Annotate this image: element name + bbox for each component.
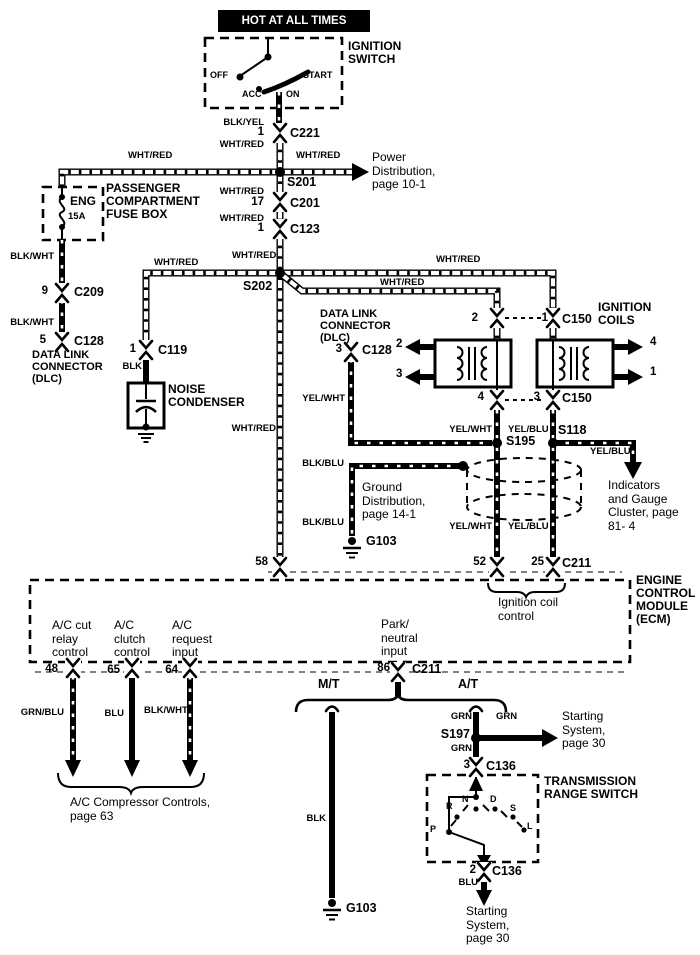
dlc-mid-label: DATA LINK CONNECTOR (DLC) xyxy=(320,309,404,345)
splice-s201: S201 xyxy=(287,175,316,189)
pin-64: 64 xyxy=(148,664,178,676)
ignition-switch-label: IGNITION SWITCH xyxy=(348,40,420,66)
connector-c211-top: C211 xyxy=(562,556,591,570)
splice-s202: S202 xyxy=(243,279,272,293)
wire-label-wht-red-8: WHT/RED xyxy=(436,254,480,265)
connector-c211-bottom: C211 xyxy=(412,662,441,676)
wire-label-grn-2: GRN xyxy=(496,711,517,722)
connector-c119: C119 xyxy=(158,343,187,357)
trs-pos-p: P xyxy=(430,824,436,834)
pin-2-c150: 2 xyxy=(462,312,478,324)
wire-label-wht-red-2: WHT/RED xyxy=(296,150,340,161)
wire-label-wht-red-1: WHT/RED xyxy=(208,139,264,150)
fuse-box-label: PASSENGER COMPARTMENT FUSE BOX xyxy=(106,182,210,221)
pin-17-c201: 17 xyxy=(246,196,264,208)
coil-output-3: 3 xyxy=(396,368,402,380)
wire-label-blu-2: BLU xyxy=(450,877,478,888)
pin-3-c150: 3 xyxy=(524,391,540,403)
connector-c150-top: C150 xyxy=(562,312,592,326)
switch-pos-off: OFF xyxy=(210,70,228,80)
pin-1-c150: 1 xyxy=(534,312,548,324)
pin-1-c221: 1 xyxy=(248,126,264,138)
connector-c209: C209 xyxy=(74,285,104,299)
pin-2-c136: 2 xyxy=(462,864,476,876)
wire-label-yel-wht-1: YEL/WHT xyxy=(301,393,345,404)
trs-label: TRANSMISSION RANGE SWITCH xyxy=(544,775,656,801)
ecm-ignition-coil-control: Ignition coil control xyxy=(498,596,576,623)
fuse-icon xyxy=(59,187,65,240)
noise-condenser-label: NOISE CONDENSER xyxy=(168,383,256,409)
wire-label-wht-red-6: WHT/RED xyxy=(232,250,276,261)
connector-c201: C201 xyxy=(290,196,320,210)
ignition-coils-label: IGNITION COILS xyxy=(598,301,670,327)
pin-3-c136: 3 xyxy=(456,759,470,771)
brace-ac-compressor xyxy=(58,773,204,793)
wire-label-blk-wht-3: BLK/WHT xyxy=(144,705,186,716)
wire-label-yel-blu-2: YEL/BLU xyxy=(590,446,631,457)
ecm-ac-clutch: A/C clutch control xyxy=(114,619,160,660)
ground-g103-b: G103 xyxy=(346,901,377,915)
ground-icon-g103-b xyxy=(323,899,341,920)
splice-s195: S195 xyxy=(506,434,535,448)
ref-ground-distribution: Ground Distribution, page 14-1 xyxy=(362,481,446,522)
wire-label-blu-1: BLU xyxy=(98,708,124,719)
switch-pos-on: ON xyxy=(286,89,300,99)
splice-s118: S118 xyxy=(558,423,587,437)
harness-cylinder xyxy=(467,458,581,520)
wire-label-grn-3: GRN xyxy=(444,743,472,754)
pin-1-c123: 1 xyxy=(248,222,264,234)
wire-label-grn-blu: GRN/BLU xyxy=(18,707,64,718)
ref-ac-compressor: A/C Compressor Controls, page 63 xyxy=(70,796,220,823)
connector-c128-left: C128 xyxy=(74,334,104,348)
ground-g103-a: G103 xyxy=(366,534,397,548)
wire-label-wht-red-3: WHT/RED xyxy=(128,150,172,161)
wire-label-blk-wht-1: BLK/WHT xyxy=(2,251,54,262)
wire-label-blk-2: BLK xyxy=(298,813,326,824)
brace-mt-at xyxy=(296,695,506,712)
ecm-ac-request: A/C request input xyxy=(172,619,224,660)
pin-9-c209: 9 xyxy=(34,285,48,297)
trs-pos-r: R xyxy=(446,801,453,811)
wire-label-yel-wht-2: YEL/WHT xyxy=(448,424,492,435)
pin-5-c128: 5 xyxy=(32,334,46,346)
wire-label-grn-1: GRN xyxy=(444,711,472,722)
ecm-ac-cut-relay: A/C cut relay control xyxy=(52,619,98,660)
pin-58-c211: 58 xyxy=(250,556,268,568)
ref-starting-system-2: Starting System, page 30 xyxy=(466,905,530,946)
switch-pos-acc: ACC xyxy=(242,89,262,99)
pin-86-c211: 86 xyxy=(362,662,390,674)
wire-label-yel-blu-3: YEL/BLU xyxy=(508,521,548,532)
connector-c123: C123 xyxy=(290,222,320,236)
ref-power-distribution: Power Distribution, page 10-1 xyxy=(372,151,452,192)
ecm-park-neutral-input: Park/ neutral input xyxy=(381,618,429,659)
splice-s197: S197 xyxy=(432,727,470,741)
wire-label-wht-red-9: WHT/RED xyxy=(380,277,424,288)
trs-box xyxy=(427,775,538,862)
transmission-range-switch-contacts xyxy=(446,775,527,867)
pin-1-c119: 1 xyxy=(124,343,136,355)
wire-label-wht-red-7: WHT/RED xyxy=(154,257,198,268)
wire-label-blk-blu-2: BLK/BLU xyxy=(300,517,344,528)
fuse-rating: 15A xyxy=(68,211,85,222)
pin-48: 48 xyxy=(28,663,58,675)
ignition-coil-left xyxy=(405,339,511,392)
branch-at: A/T xyxy=(458,677,478,691)
trs-pos-s: S xyxy=(510,803,516,813)
wire-label-yel-wht-3: YEL/WHT xyxy=(448,521,492,532)
ignition-switch-contacts xyxy=(237,38,309,92)
coil-output-1: 1 xyxy=(650,366,656,378)
pin-65: 65 xyxy=(90,664,120,676)
capacitor-icon xyxy=(128,383,164,442)
branch-mt: M/T xyxy=(318,677,340,691)
wire-label-blk-wht-2: BLK/WHT xyxy=(2,317,54,328)
ref-starting-system-1: Starting System, page 30 xyxy=(562,710,626,751)
ground-icon-g103-a xyxy=(343,537,361,558)
trs-pos-d: D xyxy=(490,794,497,804)
wire-label-blk-blu-1: BLK/BLU xyxy=(300,458,344,469)
switch-pos-start: START xyxy=(303,70,332,80)
wire-label-blk-1: BLK xyxy=(116,361,142,372)
trs-pos-n: N xyxy=(462,794,469,804)
connector-c136-top: C136 xyxy=(486,759,516,773)
wire-label-wht-red-10: WHT/RED xyxy=(226,423,276,434)
coil-output-2: 2 xyxy=(396,338,402,350)
pin-52-c211: 52 xyxy=(468,556,486,568)
connector-c128-mid: C128 xyxy=(362,343,392,357)
ref-indicators: Indicators and Gauge Cluster, page 81- 4 xyxy=(608,479,682,533)
dlc-left-label: DATA LINK CONNECTOR (DLC) xyxy=(32,350,116,386)
pin-4-c150: 4 xyxy=(468,391,484,403)
connector-c221: C221 xyxy=(290,126,320,140)
connector-c150-bottom: C150 xyxy=(562,391,592,405)
trs-pos-l: L xyxy=(527,821,533,831)
connector-c136-bottom: C136 xyxy=(492,864,522,878)
wiring-diagram: HOT AT ALL TIMES IGNITION SWITCH OFF ACC… xyxy=(0,0,700,955)
fuse-name: ENG xyxy=(70,195,96,208)
coil-output-4: 4 xyxy=(650,336,656,348)
hot-at-all-times-banner: HOT AT ALL TIMES xyxy=(218,10,370,32)
pin-3-c128-mid: 3 xyxy=(330,343,342,355)
ecm-label: ENGINE CONTROL MODULE (ECM) xyxy=(636,574,700,626)
ignition-coil-right xyxy=(537,339,643,392)
pin-25-c211: 25 xyxy=(526,556,544,568)
